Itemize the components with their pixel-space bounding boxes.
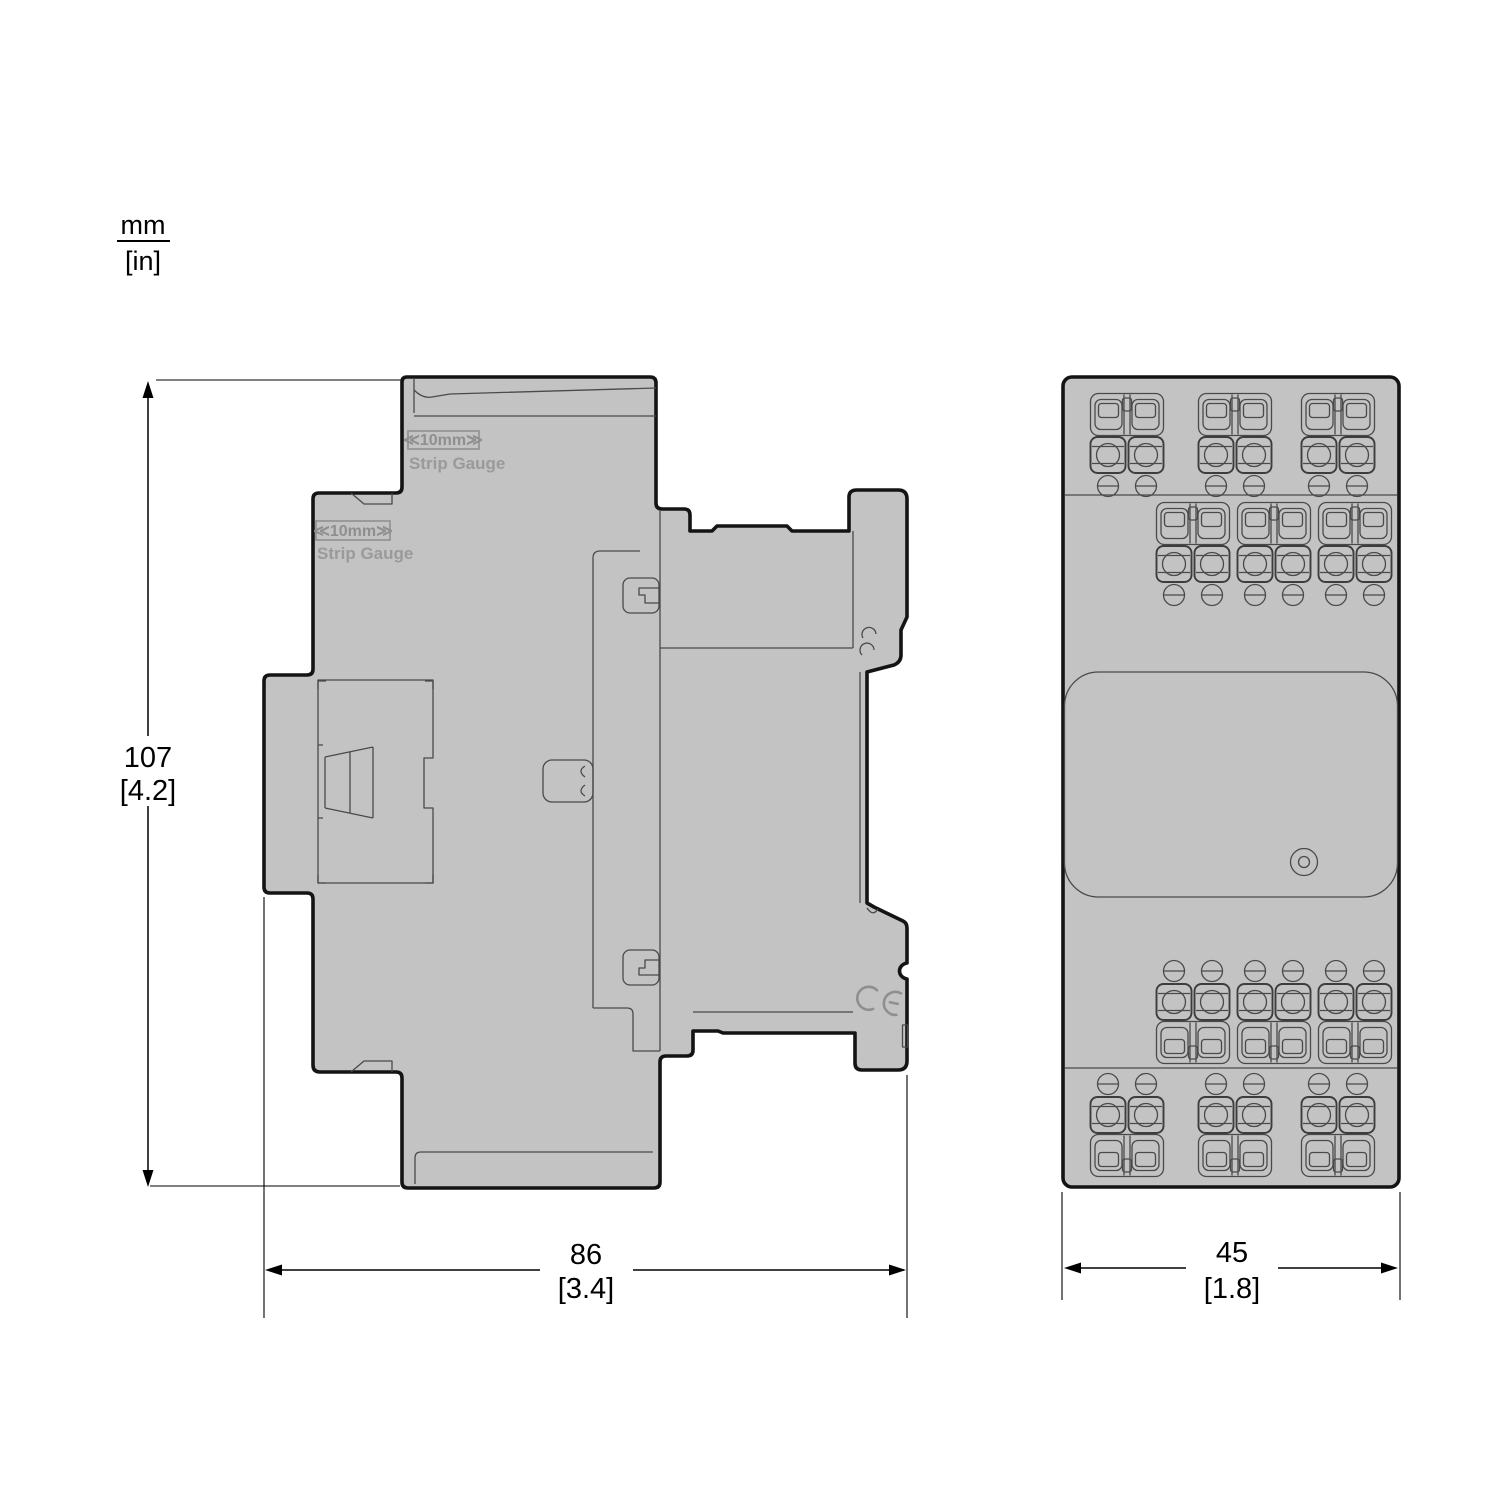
- height-mm: 107: [124, 742, 172, 774]
- dimension-width: 45 [1.8]: [1062, 1192, 1400, 1305]
- height-in: [4.2]: [120, 775, 176, 807]
- arrow-left-icon: [265, 1265, 282, 1276]
- arrow-right-icon: [889, 1265, 906, 1276]
- strip-gauge-upper-label: Strip Gauge: [409, 454, 505, 473]
- arrow-right-icon: [1381, 1263, 1398, 1274]
- width-in: [1.8]: [1204, 1273, 1260, 1305]
- width-mm: 45: [1216, 1237, 1248, 1269]
- depth-mm: 86: [570, 1239, 602, 1271]
- depth-in: [3.4]: [558, 1273, 614, 1305]
- arrow-down-icon: [143, 1170, 154, 1187]
- strip-gauge-upper-badge: ≪10mm≫: [403, 432, 483, 449]
- arrow-left-icon: [1064, 1263, 1081, 1274]
- side-view: ≪10mm≫ Strip Gauge ≪10mm≫ Strip Gauge: [264, 377, 908, 1188]
- strip-gauge-lower-label: Strip Gauge: [317, 544, 413, 563]
- front-view: [1063, 377, 1399, 1187]
- side-view-body: [264, 377, 907, 1188]
- technical-drawing-page: mm [in] 107 [4.2]: [0, 0, 1500, 1500]
- unit-primary: mm: [121, 210, 166, 240]
- strip-gauge-lower-badge: ≪10mm≫: [313, 523, 393, 540]
- unit-secondary: [in]: [125, 246, 161, 276]
- arrow-up-icon: [143, 381, 154, 398]
- front-view-body: [1063, 377, 1399, 1187]
- unit-legend: mm [in]: [117, 210, 170, 276]
- dimension-drawing: mm [in] 107 [4.2]: [0, 0, 1500, 1500]
